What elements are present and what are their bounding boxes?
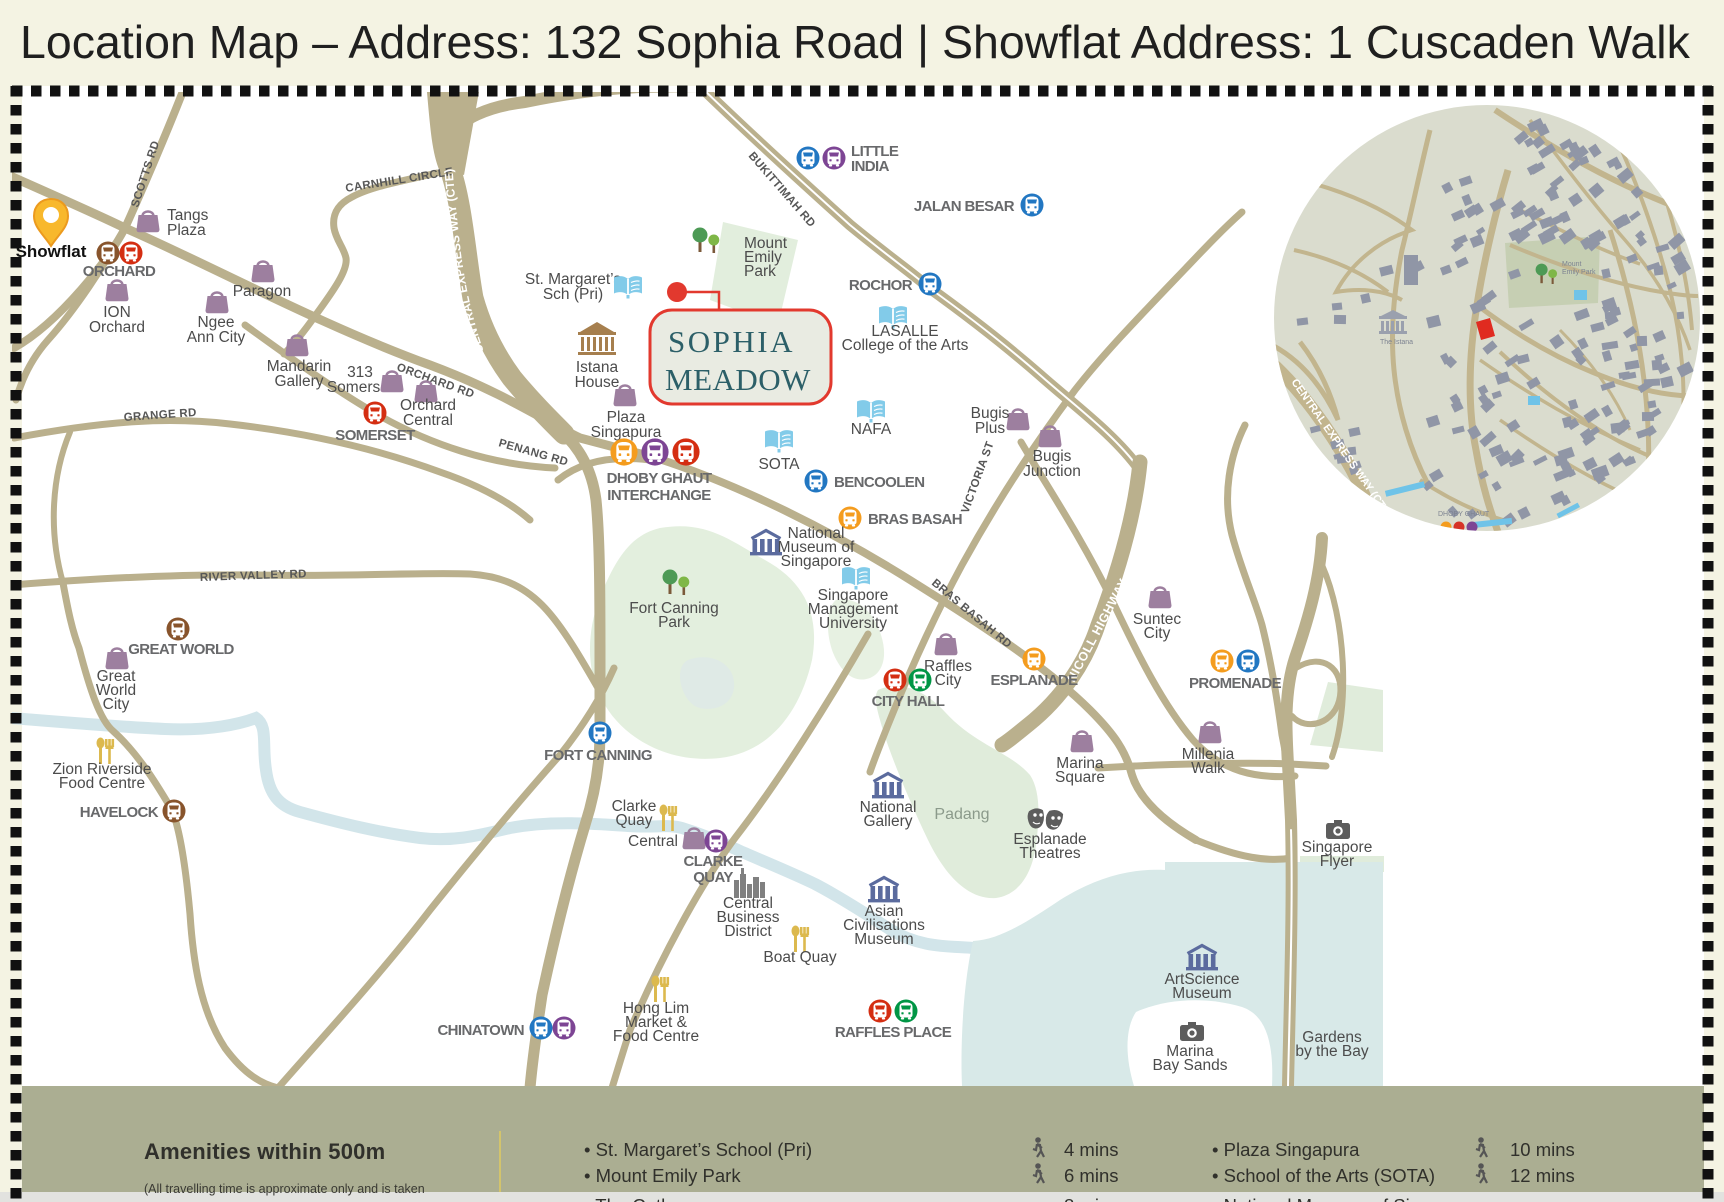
- svg-text:6 mins: 6 mins: [1064, 1165, 1119, 1186]
- svg-text:4 mins: 4 mins: [1064, 1139, 1119, 1160]
- svg-text:District: District: [724, 923, 772, 940]
- svg-text:GREAT WORLD: GREAT WORLD: [128, 641, 234, 658]
- svg-text:City: City: [935, 672, 962, 689]
- svg-text:Showflat: Showflat: [16, 242, 87, 261]
- svg-text:ESPLANADE: ESPLANADE: [990, 672, 1078, 689]
- svg-text:BENCOOLEN: BENCOOLEN: [834, 474, 924, 491]
- svg-text:Museum: Museum: [1172, 985, 1231, 1002]
- svg-text:Paragon: Paragon: [233, 283, 292, 300]
- svg-text:Gallery: Gallery: [863, 813, 912, 830]
- svg-text:Ann City: Ann City: [187, 329, 246, 346]
- svg-text:Gallery: Gallery: [274, 373, 323, 390]
- svg-text:Plaza: Plaza: [167, 222, 206, 239]
- svg-text:Park: Park: [744, 263, 776, 280]
- svg-text:Flyer: Flyer: [1320, 853, 1354, 870]
- svg-text:• Mount Emily Park: • Mount Emily Park: [584, 1165, 741, 1186]
- svg-text:8 mins: 8 mins: [1064, 1195, 1119, 1202]
- svg-text:Museum: Museum: [854, 931, 913, 948]
- svg-text:Food Centre: Food Centre: [59, 775, 145, 792]
- svg-text:PROMENADE: PROMENADE: [1189, 675, 1282, 692]
- svg-text:University: University: [819, 615, 887, 632]
- svg-text:Theatres: Theatres: [1019, 845, 1080, 862]
- svg-text:HAVELOCK: HAVELOCK: [80, 804, 159, 821]
- svg-text:BRAS BASAH: BRAS BASAH: [868, 511, 962, 528]
- svg-text:Square: Square: [1055, 769, 1105, 786]
- svg-text:• National Museum of Singapore: • National Museum of Singapore: [1212, 1195, 1478, 1202]
- svg-text:DHOBY GHAUT: DHOBY GHAUT: [607, 470, 712, 487]
- svg-text:Plus: Plus: [975, 420, 1005, 437]
- svg-text:INDIA: INDIA: [851, 158, 890, 175]
- svg-text:• School of the Arts (SOTA): • School of the Arts (SOTA): [1212, 1165, 1435, 1186]
- svg-text:ROCHOR: ROCHOR: [849, 277, 913, 294]
- svg-text:Walk: Walk: [1191, 760, 1225, 777]
- svg-text:by the Bay: by the Bay: [1295, 1043, 1368, 1060]
- svg-text:10 mins: 10 mins: [1510, 1139, 1575, 1160]
- svg-text:INTERCHANGE: INTERCHANGE: [607, 487, 711, 504]
- svg-text:JALAN BESAR: JALAN BESAR: [914, 198, 1015, 215]
- svg-text:Junction: Junction: [1023, 463, 1081, 480]
- svg-text:Central: Central: [403, 412, 453, 429]
- svg-text:City: City: [1144, 625, 1171, 642]
- svg-text:Orchard: Orchard: [89, 319, 145, 336]
- svg-text:Boat Quay: Boat Quay: [763, 949, 836, 966]
- svg-text:Bay Sands: Bay Sands: [1153, 1057, 1228, 1074]
- svg-text:SOMERSET: SOMERSET: [335, 427, 415, 444]
- svg-text:Amenities within 500m: Amenities within 500m: [144, 1139, 385, 1164]
- svg-text:Park: Park: [658, 614, 690, 631]
- svg-text:FORT CANNING: FORT CANNING: [544, 747, 652, 764]
- svg-text:Padang: Padang: [934, 806, 989, 823]
- svg-text:Emily Park: Emily Park: [1562, 269, 1596, 276]
- svg-text:Location Map – Address: 132 So: Location Map – Address: 132 Sophia Road …: [20, 16, 1691, 68]
- svg-text:College of the Arts: College of the Arts: [842, 337, 969, 354]
- svg-text:Sch (Pri): Sch (Pri): [543, 286, 603, 303]
- svg-text:CLARKE: CLARKE: [684, 853, 743, 870]
- svg-text:ORCHARD: ORCHARD: [83, 263, 156, 280]
- svg-text:Quay: Quay: [615, 812, 652, 829]
- svg-text:RAFFLES PLACE: RAFFLES PLACE: [835, 1024, 952, 1041]
- svg-text:City: City: [103, 696, 130, 713]
- svg-text:Food Centre: Food Centre: [613, 1028, 699, 1045]
- svg-text:Singapore: Singapore: [781, 553, 852, 570]
- svg-text:(All travelling time is approx: (All travelling time is approximate only…: [144, 1182, 425, 1196]
- svg-text:Singapura: Singapura: [591, 424, 662, 441]
- svg-text:CHINATOWN: CHINATOWN: [437, 1022, 524, 1039]
- svg-text:The Istana: The Istana: [1380, 339, 1413, 346]
- svg-text:12 mins: 12 mins: [1510, 1165, 1575, 1186]
- svg-text:• The Cathay: • The Cathay: [584, 1195, 692, 1202]
- svg-text:House: House: [575, 374, 620, 391]
- svg-text:QUAY: QUAY: [693, 869, 733, 886]
- svg-text:NAFA: NAFA: [851, 421, 892, 438]
- svg-text:DHOBY GHAUT: DHOBY GHAUT: [1438, 511, 1490, 518]
- svg-text:MEADOW: MEADOW: [665, 362, 811, 397]
- svg-text:• St. Margaret’s School (Pri): • St. Margaret’s School (Pri): [584, 1139, 812, 1160]
- svg-text:SOPHIA: SOPHIA: [668, 324, 795, 359]
- svg-text:Mount: Mount: [1562, 261, 1582, 268]
- svg-text:CITY HALL: CITY HALL: [872, 693, 945, 710]
- svg-text:Central: Central: [628, 833, 678, 850]
- svg-text:SOTA: SOTA: [758, 456, 800, 473]
- svg-text:• Plaza Singapura: • Plaza Singapura: [1212, 1139, 1360, 1160]
